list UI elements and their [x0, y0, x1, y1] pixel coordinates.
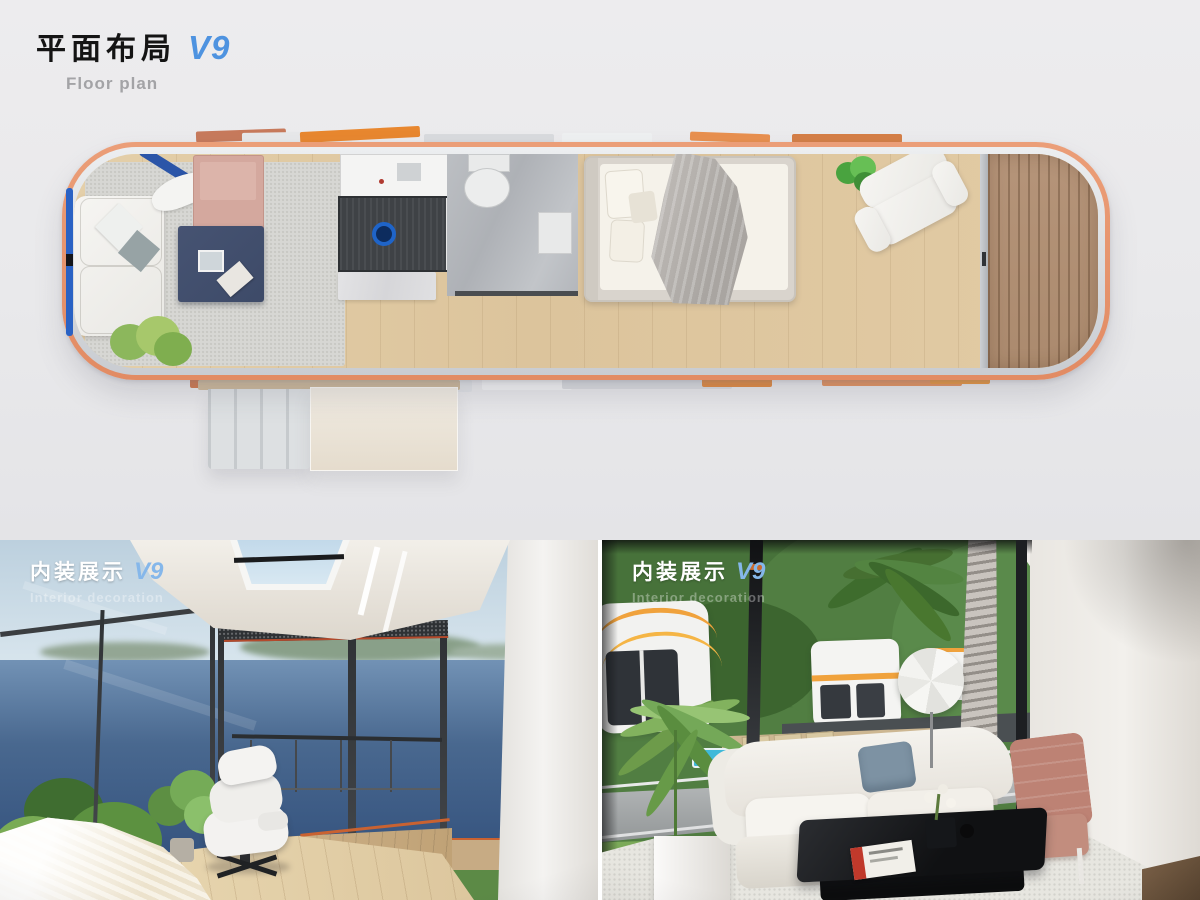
plant-stem — [674, 730, 677, 840]
baluster — [390, 740, 392, 792]
flower — [924, 792, 935, 803]
capsule-house — [811, 638, 902, 727]
toilet-bowl — [464, 168, 510, 208]
interior-right-version-badge: V9 — [736, 558, 765, 585]
blue-pillow — [857, 740, 917, 793]
umbrella-pole — [930, 712, 933, 768]
floor-plan-title-block: 平面布局V9 Floor plan — [36, 24, 230, 94]
side-pane-deck — [452, 838, 500, 874]
interior-right-title-block: 内装展示V9 Interior decoration — [632, 556, 766, 605]
photo-frame — [198, 250, 224, 272]
bath-cabinet — [538, 212, 572, 254]
deck — [988, 154, 1098, 368]
glass-partition — [980, 154, 988, 368]
baluster — [340, 740, 342, 792]
led-strip — [358, 546, 381, 615]
door-threshold — [455, 291, 578, 296]
wall-column — [498, 540, 598, 900]
bathroom-floor — [447, 154, 578, 296]
living-plant — [110, 316, 194, 368]
decor-sphere — [960, 824, 974, 838]
house-orange-stripe — [812, 672, 900, 681]
floor-plan-section: 平面布局V9 Floor plan — [0, 0, 1200, 540]
interior-right-title: 内装展示 — [632, 561, 728, 584]
interior-left-title: 内装展示 — [30, 561, 126, 584]
marble-counter — [338, 272, 436, 300]
interior-photo-bedroom: 内装展示V9 Interior decoration — [0, 540, 598, 900]
magazine-text-line — [869, 847, 903, 855]
interior-right-subtitle: Interior decoration — [632, 590, 766, 605]
eames-lounge-chair — [196, 746, 296, 876]
interior-photo-livingroom: 内装展示V9 Interior decoration — [602, 540, 1200, 900]
interior-left-title-block: 内装展示V9 Interior decoration — [30, 556, 164, 605]
coffee-table-black — [798, 808, 1048, 900]
shower-drain — [372, 222, 396, 246]
shower-area — [338, 196, 451, 272]
flower — [938, 784, 948, 794]
floor-plan-render — [62, 142, 1110, 380]
house-window — [856, 683, 885, 718]
table-top — [797, 807, 1048, 882]
partition-handle — [982, 252, 986, 266]
design-board: 平面布局V9 Floor plan — [0, 0, 1200, 900]
house-window — [820, 684, 851, 719]
led-strip — [381, 551, 407, 638]
entry-steps — [208, 389, 310, 469]
kitchen-knob — [379, 179, 384, 184]
ceiling-shadow-edge — [602, 540, 1032, 554]
pillow-small — [628, 190, 658, 223]
headboard — [586, 158, 598, 300]
kitchen-unit — [340, 154, 450, 198]
white-planter — [654, 836, 730, 900]
interior-left-subtitle: Interior decoration — [30, 590, 164, 605]
roof-module — [300, 126, 420, 143]
table-tray — [925, 817, 957, 849]
floor-plan-subtitle: Floor plan — [66, 74, 230, 94]
pillow — [609, 219, 645, 263]
bed — [584, 156, 796, 302]
capsule-floor — [74, 154, 1098, 368]
magazine-text-line — [870, 856, 898, 863]
ottoman-flap — [200, 162, 256, 200]
flower — [946, 798, 956, 808]
patio-umbrella — [898, 648, 964, 714]
floor-plan-version-badge: V9 — [188, 29, 230, 66]
kitchen-vent — [397, 163, 421, 181]
wall-shadow — [1030, 540, 1200, 700]
leaf — [154, 332, 192, 366]
window-bar-notch — [66, 254, 73, 266]
entry-platform — [310, 387, 458, 471]
coffee-table-navy — [178, 226, 264, 302]
interior-left-version-badge: V9 — [134, 558, 163, 585]
left-window-bar — [66, 188, 73, 336]
floor-plan-title: 平面布局 — [36, 33, 176, 66]
